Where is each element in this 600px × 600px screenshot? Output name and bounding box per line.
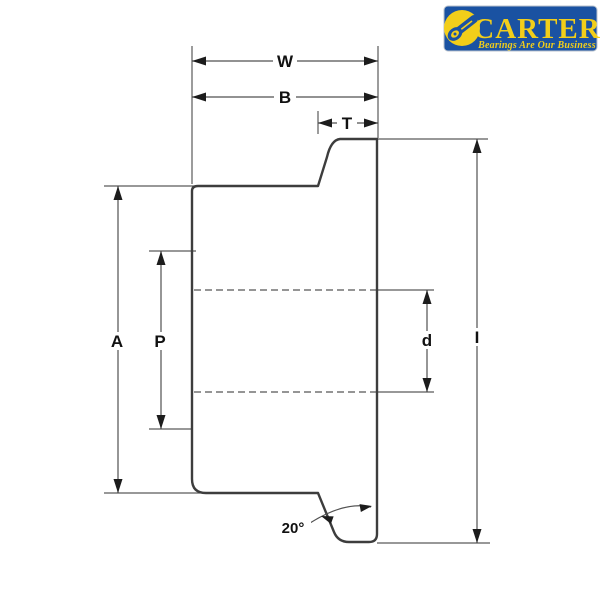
dim-label-body-width: B: [279, 88, 291, 107]
catalog-drawing-page: W B T A P d I 20° CARTER Bearings Are Ou…: [0, 0, 600, 600]
dim-label-flange-diameter: I: [475, 328, 480, 347]
carter-logo: CARTER Bearings Are Our Business: [444, 6, 600, 51]
dim-label-body-diameter: A: [111, 332, 123, 351]
dim-label-overall-width: W: [277, 52, 294, 71]
dimension-labels: W B T A P d I 20°: [111, 52, 480, 537]
part-outline: [192, 139, 377, 542]
dim-label-flange-thickness: T: [342, 114, 353, 133]
dim-label-chamfer-angle: 20°: [282, 520, 305, 537]
hidden-bore-lines: [194, 290, 377, 392]
bearing-cross-section-drawing: W B T A P d I 20° CARTER Bearings Are Ou…: [0, 0, 600, 600]
dim-label-bore-diameter: d: [422, 331, 432, 350]
dimension-arrowheads: [114, 57, 482, 544]
extension-lines: [104, 46, 490, 543]
logo-tagline-text: Bearings Are Our Business: [477, 40, 596, 51]
dim-label-pilot-diameter: P: [154, 332, 165, 351]
